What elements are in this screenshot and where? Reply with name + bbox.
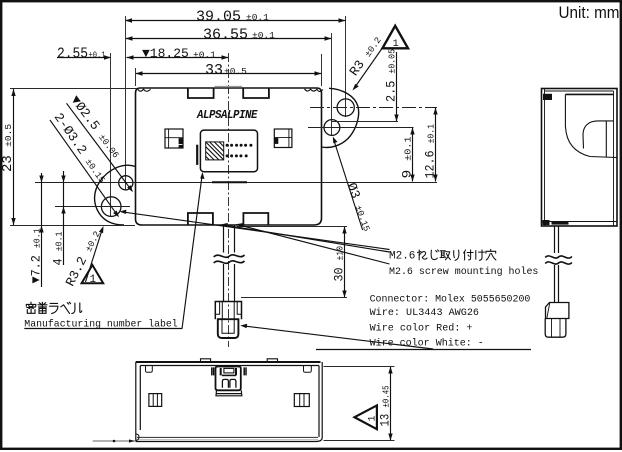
svg-text:1: 1 <box>90 274 97 286</box>
svg-text:M2.6 screw mounting holes: M2.6 screw mounting holes <box>389 266 538 278</box>
svg-text:±0.1: ±0.1 <box>193 50 216 61</box>
svg-text:±0.1: ±0.1 <box>252 30 275 41</box>
svg-text:±0.5: ±0.5 <box>224 66 247 77</box>
svg-text:ALPSALPINE: ALPSALPINE <box>196 109 258 122</box>
svg-text:39.05: 39.05 <box>196 9 241 26</box>
svg-text:Unit: mm: Unit: mm <box>559 3 620 22</box>
svg-text:Connector: Molex 5055650200: Connector: Molex 5055650200 <box>370 294 531 306</box>
svg-text:Wire color Red: +: Wire color Red: + <box>370 323 473 335</box>
svg-text:Wire: UL3443 AWG26: Wire: UL3443 AWG26 <box>370 307 479 319</box>
svg-text:2.55: 2.55 <box>57 46 88 63</box>
svg-text:33: 33 <box>205 62 223 79</box>
svg-text:±0.1: ±0.1 <box>89 51 106 61</box>
svg-text:±0.1: ±0.1 <box>246 12 269 23</box>
svg-text:1: 1 <box>368 415 379 421</box>
svg-text:23 ±0.5: 23 ±0.5 <box>0 124 16 172</box>
svg-text:M2.6: M2.6 <box>389 251 415 263</box>
svg-text:1: 1 <box>393 39 399 50</box>
svg-text:▼18.25: ▼18.25 <box>142 46 189 61</box>
svg-text:36.55: 36.55 <box>203 27 248 44</box>
